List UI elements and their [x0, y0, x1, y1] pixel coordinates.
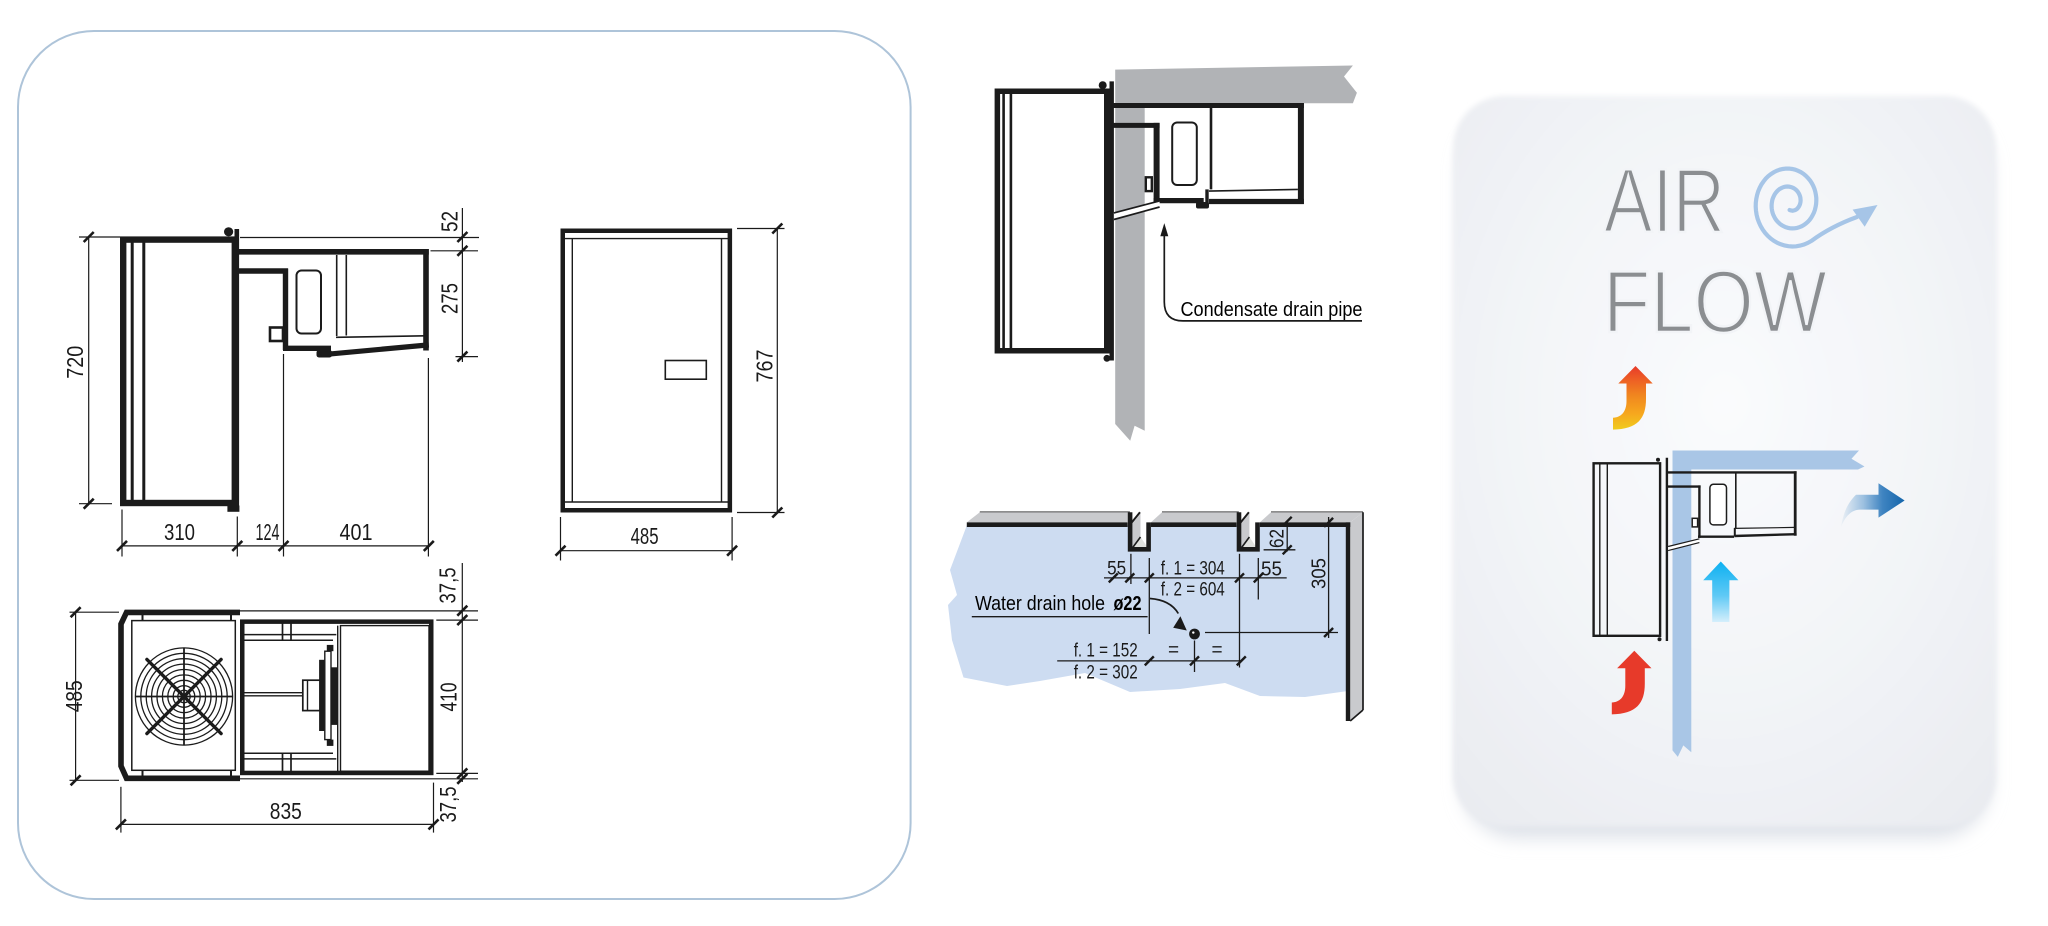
svg-text:124: 124 [256, 519, 280, 545]
svg-text:f. 2 = 302: f. 2 = 302 [1074, 663, 1138, 684]
svg-text:=: = [1211, 640, 1222, 661]
svg-text:37,5: 37,5 [435, 787, 461, 823]
svg-text:485: 485 [61, 680, 87, 712]
svg-text:835: 835 [270, 798, 302, 824]
svg-text:37,5: 37,5 [435, 568, 461, 604]
svg-text:55: 55 [1261, 557, 1282, 580]
svg-text:485: 485 [631, 523, 659, 549]
svg-text:767: 767 [752, 350, 778, 383]
svg-text:Water drain hole ø22: Water drain hole ø22 [975, 592, 1142, 615]
svg-text:401: 401 [340, 519, 373, 545]
svg-text:275: 275 [437, 283, 463, 314]
svg-text:410: 410 [436, 683, 462, 712]
svg-text:f. 1 = 304: f. 1 = 304 [1161, 559, 1225, 580]
svg-text:55: 55 [1107, 559, 1126, 580]
svg-text:AIR: AIR [1604, 151, 1725, 252]
svg-text:Condensate drain pipe: Condensate drain pipe [1181, 298, 1363, 321]
svg-text:FLOW: FLOW [1603, 252, 1827, 351]
svg-text:720: 720 [62, 346, 88, 379]
svg-text:=: = [1168, 640, 1179, 661]
svg-text:310: 310 [164, 519, 195, 545]
svg-text:305: 305 [1308, 558, 1331, 589]
svg-text:62: 62 [1266, 529, 1289, 548]
svg-text:f. 1 = 152: f. 1 = 152 [1074, 641, 1138, 662]
svg-text:f. 2 = 604: f. 2 = 604 [1161, 579, 1225, 600]
svg-text:52: 52 [437, 211, 463, 232]
